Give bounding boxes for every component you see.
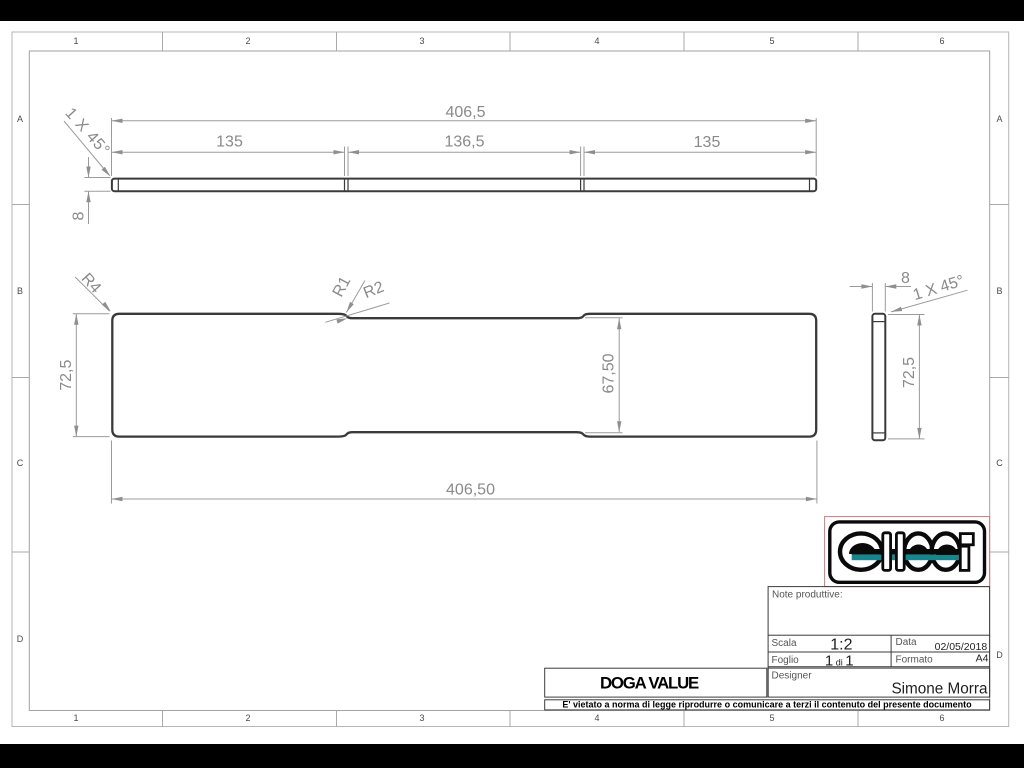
svg-text:6: 6 [939,713,944,723]
svg-text:D: D [17,634,24,644]
svg-text:406,5: 406,5 [445,104,485,121]
svg-text:Formato: Formato [896,655,934,666]
svg-text:8: 8 [901,270,910,287]
svg-text:Note produttive:: Note produttive: [772,590,843,601]
svg-text:67,50: 67,50 [601,353,618,393]
svg-text:DOGA VALUE: DOGA VALUE [600,674,699,693]
svg-text:136,5: 136,5 [444,134,484,151]
svg-text:1: 1 [73,713,78,723]
svg-text:135: 135 [216,134,243,151]
svg-text:2: 2 [245,36,250,46]
svg-text:72,5: 72,5 [58,360,75,391]
svg-text:5: 5 [769,713,774,723]
svg-text:E' vietato a norma di legge ri: E' vietato a norma di legge riprodurre o… [562,700,972,710]
svg-text:406,50: 406,50 [446,482,495,499]
svg-text:72,5: 72,5 [901,357,918,388]
svg-text:2: 2 [245,713,250,723]
svg-text:Data: Data [896,637,918,648]
svg-text:8: 8 [71,211,88,220]
svg-text:Designer: Designer [772,671,813,682]
svg-text:B: B [996,286,1002,296]
svg-text:3: 3 [419,36,424,46]
svg-text:3: 3 [419,713,424,723]
svg-text:B: B [17,286,23,296]
svg-text:D: D [996,650,1003,660]
svg-text:4: 4 [594,713,599,723]
svg-text:C: C [996,458,1003,468]
svg-text:4: 4 [594,36,599,46]
svg-text:C: C [17,458,24,468]
svg-text:5: 5 [769,36,774,46]
svg-text:Scala: Scala [772,638,797,649]
svg-text:Foglio: Foglio [772,655,800,666]
svg-text:A4: A4 [976,653,989,665]
svg-text:135: 135 [694,134,721,151]
svg-text:1:2: 1:2 [830,637,852,654]
svg-text:Simone Morra: Simone Morra [891,681,988,698]
svg-text:A: A [17,114,23,124]
svg-text:6: 6 [939,36,944,46]
svg-text:A: A [996,114,1002,124]
svg-text:1: 1 [73,36,78,46]
svg-text:02/05/2018: 02/05/2018 [935,641,988,653]
